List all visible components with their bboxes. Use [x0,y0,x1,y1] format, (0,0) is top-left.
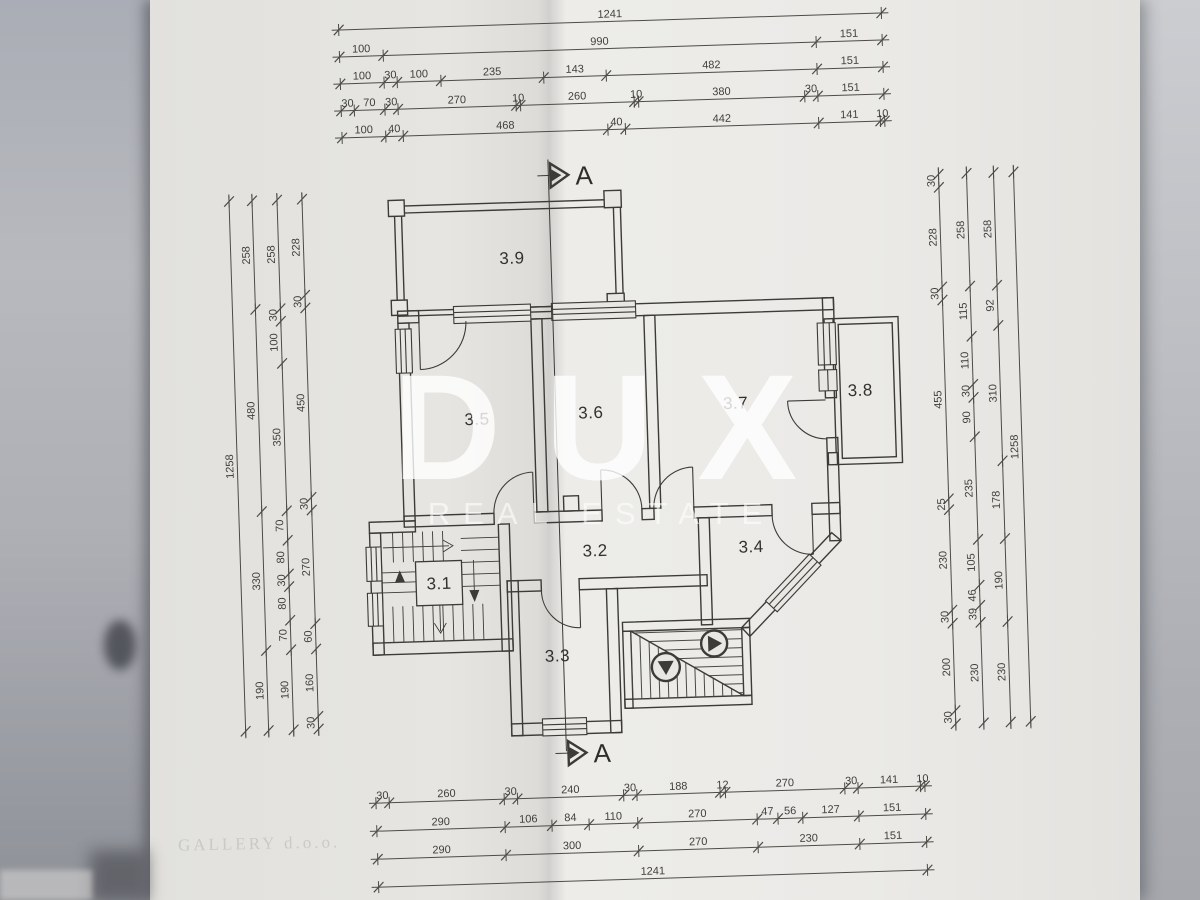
dim-line [370,814,933,832]
dim-label: 270 [688,808,707,821]
dim-label: 480 [245,401,258,420]
dim-label: 1241 [640,865,665,878]
dim-label: 310 [987,384,1000,403]
dim-label: 30 [624,782,637,794]
wall [404,513,494,527]
dim-label: 46 [967,589,979,602]
dim-label: 235 [963,479,976,498]
dim-label: 30 [929,287,941,300]
dim-label: 990 [590,36,609,49]
dimension-chains: 1241100990151100301002351434821513070302… [210,0,1040,898]
dim-label: 70 [274,519,286,532]
dim-label: 258 [982,220,995,239]
dim-label: 30 [305,717,317,730]
dim-line [334,94,891,111]
dim-label: 450 [295,393,308,412]
wall [644,315,661,508]
room-label: 3.7 [723,393,749,413]
dim-label: 200 [941,658,954,677]
photo-of-floor-plan: 1241100990151100301002351434821513070302… [0,0,1200,900]
wall [642,508,654,519]
dim-label: 10 [916,773,929,785]
dim-label: 151 [840,28,859,41]
room-label: 3.6 [578,403,604,423]
dim-label: 70 [363,97,376,109]
dim-label: 100 [410,68,429,81]
dim-label: 30 [926,175,938,188]
dim-label: 1258 [224,454,237,479]
doors [419,310,833,633]
wall [579,575,707,590]
room-label: 3.1 [426,574,452,594]
dim-label: 468 [496,120,515,133]
dim-label: 230 [996,663,1009,682]
dim-label: 30 [960,385,972,398]
dim-label: 115 [958,302,971,320]
dim-label: 230 [799,832,818,845]
chimney [563,496,578,511]
wall [694,505,772,518]
dim-label: 100 [353,70,372,83]
dim-label: 30 [385,96,398,108]
dim-label: 56 [784,805,797,817]
dim-label: 270 [776,777,795,790]
room-label: 3.3 [545,646,571,666]
company-stamp: GALLERY d.o.o. [178,832,341,855]
dim-label: 30 [384,69,397,81]
plan-walls: A A [354,149,912,776]
dim-label: 260 [437,788,456,801]
dim-label: 90 [961,411,973,424]
floor-plan-drawing: 1241100990151100301002351434821513070302… [0,0,1200,900]
dim-label: 39 [967,608,979,621]
dim-label: 110 [959,352,972,370]
dim-label: 290 [431,816,450,829]
dim-label: 151 [841,82,860,95]
dim-label: 270 [300,558,313,577]
dim-label: 258 [265,245,278,264]
dim-label: 235 [483,66,502,79]
dim-label: 30 [939,611,951,624]
dim-label: 80 [276,597,288,610]
dim-line [966,166,984,729]
dim-label: 270 [448,94,467,107]
dim-label: 30 [292,295,304,308]
dim-label: 300 [563,840,582,853]
dim-label: 230 [969,663,982,682]
dim-label: 350 [271,428,284,447]
dim-label: 270 [689,836,708,849]
section-line [537,159,587,766]
dim-label: 330 [251,572,264,591]
dim-label: 84 [564,812,577,824]
wall [507,581,523,736]
dim-label: 228 [290,238,303,257]
dim-line [371,842,934,860]
dim-label: 160 [304,674,317,693]
dim-label: 1241 [597,8,622,21]
windows [358,295,847,742]
dim-label: 30 [276,574,288,587]
vent-symbol-right [701,630,728,657]
dim-label: 188 [669,780,688,793]
dim-label: 30 [942,711,954,724]
dim-label: 40 [388,123,401,135]
dim-label: 258 [955,221,968,240]
dim-label: 230 [937,551,950,570]
wall [698,518,712,625]
dim-label: 100 [268,333,281,352]
dim-label: 482 [702,59,721,72]
dim-label: 105 [965,553,978,572]
dim-label: 30 [298,498,310,511]
dim-label: 10 [512,92,525,104]
dim-label: 240 [561,784,580,797]
dim-label: 151 [840,55,859,68]
wall [606,589,622,733]
dim-label: 92 [984,299,996,312]
wall [812,502,840,514]
room-label: 3.2 [582,541,608,561]
dim-label: 60 [303,630,315,643]
section-label-bottom: A [593,738,612,769]
dim-label: 258 [240,246,253,265]
dim-label: 127 [821,804,840,817]
dim-label: 47 [761,806,774,818]
dim-label: 151 [883,802,902,815]
dim-label: 151 [884,830,903,843]
dim-line [333,40,890,57]
dim-label: 80 [275,551,287,564]
dim-label: 12 [716,779,729,791]
dim-label: 190 [993,571,1006,590]
section-label-top: A [575,160,594,191]
dim-label: 30 [341,98,354,110]
dim-label: 40 [610,116,623,128]
room-label: 3.9 [499,248,525,268]
dim-label: 106 [519,813,538,826]
dim-label: 290 [432,844,451,857]
dim-label: 380 [712,86,731,99]
dim-label: 110 [604,810,622,823]
dim-label: 25 [936,498,948,511]
dim-label: 178 [990,491,1003,510]
dim-label: 1258 [1009,434,1022,459]
room-label: 3.8 [847,380,873,400]
dim-label: 228 [927,228,940,247]
dim-label: 455 [932,390,945,409]
dim-label: 442 [712,113,731,126]
room-label: 3.4 [738,537,764,557]
dim-label: 30 [376,790,389,802]
dim-label: 190 [279,681,292,700]
dim-label: 100 [354,124,373,137]
dim-label: 70 [277,629,289,642]
dim-label: 141 [840,109,859,122]
dim-label: 30 [845,775,858,787]
dim-label: 10 [876,108,889,120]
dim-label: 30 [267,309,279,322]
dim-label: 30 [805,83,818,95]
room-label: 3.5 [464,409,490,429]
dim-line [938,167,956,730]
dim-label: 100 [352,43,371,56]
vent-symbol-down [651,653,680,682]
dim-label: 190 [254,681,267,700]
wall [507,580,541,592]
dim-label: 10 [630,88,643,100]
dim-label: 260 [568,90,587,103]
dim-label: 141 [880,774,899,787]
wall [498,524,513,651]
dim-label: 143 [565,63,584,76]
dim-label: 30 [504,786,517,798]
